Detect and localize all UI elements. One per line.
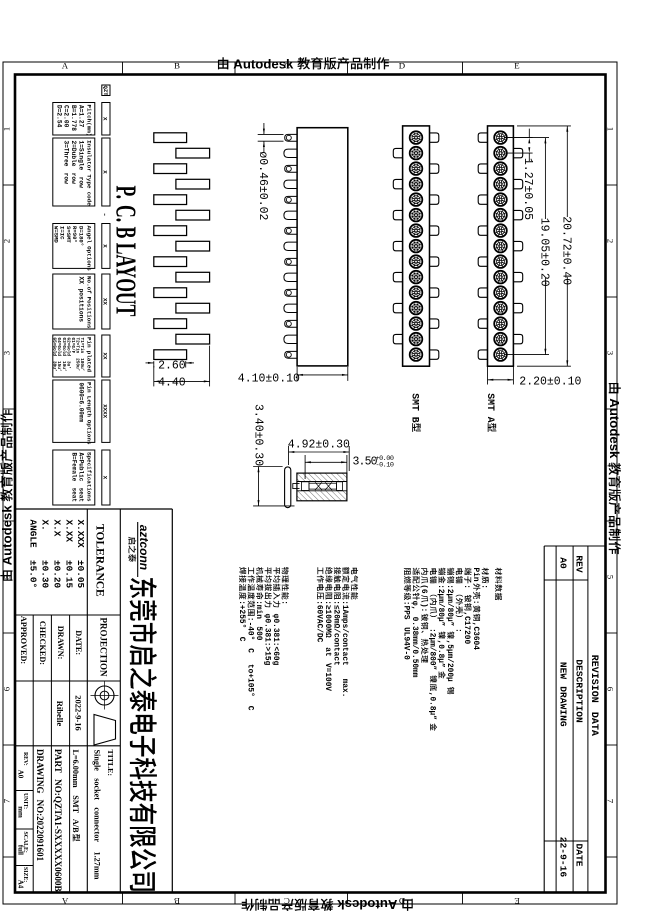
svg-text:B: B	[109, 227, 140, 239]
svg-text:REV: REV	[574, 555, 585, 573]
svg-text:REV:: REV:	[22, 752, 28, 766]
svg-text:XXXX: XXXX	[102, 404, 109, 418]
svg-text:X: X	[102, 244, 109, 248]
svg-text:Single: Single	[93, 750, 102, 772]
svg-text:PART: PART	[53, 749, 63, 773]
svg-text:mm: mm	[17, 806, 25, 818]
svg-text:X.XXX: X.XXX	[75, 520, 86, 549]
svg-text::: :	[471, 600, 479, 605]
svg-text:P.: P.	[109, 186, 140, 200]
svg-text:±0.20: ±0.20	[51, 560, 62, 589]
svg-text:1.27±0.05: 1.27±0.05	[521, 158, 534, 220]
svg-text:NO:QZTA1-SXXXXX0600B: NO:QZTA1-SXXXXX0600B	[53, 779, 63, 892]
svg-text:Options: Options	[86, 246, 93, 271]
svg-text:B: B	[174, 61, 180, 71]
svg-text:A/B: A/B	[71, 819, 80, 833]
svg-text:Specifications: Specifications	[86, 452, 93, 502]
svg-text:E: E	[514, 896, 519, 906]
svg-text:19.05±0.20: 19.05±0.20	[538, 218, 551, 287]
svg-text:B=Female: B=Female	[70, 453, 77, 482]
svg-text:DRAWING: DRAWING	[558, 686, 569, 727]
svg-text:UL94V-0: UL94V-0	[402, 627, 410, 660]
svg-text:C: C	[245, 648, 253, 653]
svg-text:TITLE:: TITLE:	[106, 750, 115, 776]
svg-text:LAYOUT: LAYOUT	[109, 243, 140, 317]
svg-text:DRAWING: DRAWING	[35, 749, 45, 794]
svg-text::: :	[462, 584, 470, 589]
svg-text:):: ):	[419, 603, 427, 612]
svg-text:row: row	[78, 177, 85, 188]
svg-text::2μm/800”: :2μm/800”	[428, 628, 436, 670]
svg-text:4.40: 4.40	[158, 377, 186, 390]
svg-text:6: 6	[2, 686, 12, 691]
svg-text:ANGLE: ANGLE	[28, 520, 39, 549]
svg-text:B=1.778: B=1.778	[70, 105, 77, 131]
svg-text:-0.10: -0.10	[376, 462, 394, 470]
svg-text:7: 7	[2, 798, 12, 803]
svg-text:Autodesk: Autodesk	[607, 398, 622, 459]
svg-text::≤20mΩ/contact: :≤20mΩ/contact	[332, 600, 340, 666]
svg-text:at: at	[323, 647, 331, 656]
svg-text:A: A	[61, 896, 68, 906]
svg-text:XX: XX	[102, 298, 109, 305]
svg-text:250u’: 250u’	[75, 358, 80, 371]
svg-text:C: C	[237, 637, 245, 642]
svg-text:A: A	[62, 61, 69, 71]
svg-text:Autodesk: Autodesk	[337, 897, 398, 912]
svg-text:row: row	[63, 173, 70, 184]
svg-text:NO:2022091601: NO:2022091601	[35, 800, 45, 862]
svg-text:0600=6.00mm: 0600=6.00mm	[78, 383, 85, 423]
svg-text:C.: C.	[109, 205, 140, 222]
svg-text:3: 3	[2, 350, 12, 355]
svg-text:Pin: Pin	[86, 382, 93, 393]
svg-text:D=2.54: D=2.54	[55, 105, 62, 128]
svg-text:Options: Options	[86, 420, 93, 445]
svg-text:TOLERANCE: TOLERANCE	[94, 524, 106, 597]
svg-text:500: 500	[254, 626, 262, 640]
svg-text:C=2.00: C=2.00	[63, 105, 70, 128]
svg-text:plated: plated	[86, 351, 93, 373]
svg-text:D: D	[399, 61, 405, 71]
svg-text:XX: XX	[102, 353, 109, 360]
svg-text:XX: XX	[78, 277, 85, 285]
svg-text:DATE:: DATE:	[74, 630, 83, 655]
svg-text:B: B	[174, 896, 180, 906]
svg-text:6: 6	[606, 687, 616, 692]
svg-text:4.92±0.30: 4.92±0.30	[288, 439, 350, 452]
svg-text:±0.30: ±0.30	[40, 560, 51, 589]
svg-text:2: 2	[606, 239, 616, 243]
svg-text:L=6.00mm: L=6.00mm	[71, 750, 80, 788]
svg-text:±0.05: ±0.05	[75, 560, 86, 589]
svg-text:max.: max.	[340, 679, 348, 698]
svg-text:V=100V: V=100V	[323, 663, 331, 691]
svg-text:row: row	[70, 173, 77, 184]
svg-text:5: 5	[606, 575, 616, 580]
svg-text::-40°: :-40°	[245, 617, 254, 640]
svg-text:-: -	[101, 213, 110, 216]
svg-text:X: X	[102, 476, 109, 480]
svg-text:1.27mm: 1.27mm	[93, 852, 102, 880]
svg-text::2μm/80μ”: :2μm/80μ”	[445, 584, 453, 626]
svg-text:,C3604: ,C3604	[471, 622, 479, 650]
svg-text:,C17200: ,C17200	[462, 611, 470, 644]
svg-text:to+105°: to+105°	[245, 664, 254, 697]
svg-text:3.50: 3.50	[353, 456, 378, 469]
svg-text:A: A	[485, 417, 496, 423]
svg-text:E: E	[514, 61, 519, 71]
svg-text:,0.8μ”: ,0.8μ”	[436, 640, 444, 668]
svg-text:code: code	[86, 192, 93, 207]
svg-text:positions: positions	[78, 289, 85, 323]
svg-text:DESCRIPTION: DESCRIPTION	[574, 659, 585, 723]
svg-text:X.X: X.X	[51, 520, 62, 537]
svg-text:C: C	[284, 896, 290, 906]
svg-text:4.10±0.10: 4.10±0.10	[238, 373, 300, 386]
svg-text:2.20±0.10: 2.20±0.10	[519, 376, 581, 389]
svg-text:A=1.27: A=1.27	[78, 105, 85, 128]
svg-text:DATE: DATE	[574, 844, 585, 867]
svg-text:φ0.381:<60g: φ0.381:<60g	[271, 614, 279, 666]
svg-text:A=Public: A=Public	[78, 453, 85, 482]
svg-text:DATA: DATA	[588, 712, 599, 736]
svg-text:2=Duble: 2=Duble	[70, 141, 77, 167]
svg-text:SMT: SMT	[71, 795, 80, 813]
svg-text:QZT: QZT	[102, 86, 109, 97]
svg-text:Angel: Angel	[86, 226, 93, 244]
svg-text:connector: connector	[93, 807, 102, 842]
svg-text:0.38mm/0.50mm: 0.38mm/0.50mm	[410, 617, 418, 678]
svg-text:seat: seat	[78, 488, 85, 503]
svg-text::+255°: :+255°	[237, 600, 246, 628]
svg-text:2: 2	[2, 239, 12, 243]
svg-text:,0.8μ”: ,0.8μ”	[428, 692, 436, 720]
svg-text:NEW: NEW	[558, 662, 569, 680]
svg-text:±0.15: ±0.15	[63, 560, 74, 589]
svg-text:B: B	[410, 417, 421, 423]
svg-text:Pitch(mm): Pitch(mm)	[86, 105, 93, 137]
svg-text:7: 7	[606, 799, 616, 804]
svg-text:G5=Gold: G5=Gold	[52, 338, 57, 357]
svg-text::: :	[453, 628, 461, 633]
svg-text:Pin: Pin	[471, 568, 479, 582]
svg-text:APPROVED:: APPROVED:	[19, 616, 28, 664]
svg-text:full: full	[17, 845, 25, 855]
svg-text::1Amps/contact: :1Amps/contact	[340, 600, 348, 666]
svg-text::: :	[279, 600, 287, 605]
svg-text:Pin: Pin	[86, 337, 93, 348]
svg-text:DRAWN:: DRAWN:	[56, 626, 65, 660]
svg-text:1: 1	[2, 127, 12, 131]
svg-text:X: X	[102, 170, 109, 174]
svg-text:Autodesk: Autodesk	[233, 56, 294, 71]
svg-text:aztconn: aztconn	[137, 525, 151, 570]
svg-text:SMT: SMT	[410, 393, 421, 411]
svg-text:3=Three: 3=Three	[63, 141, 70, 167]
svg-text::60VAC/DC: :60VAC/DC	[315, 600, 323, 642]
svg-text:ø0.46±0.02: ø0.46±0.02	[256, 151, 269, 220]
svg-text:Ribelle: Ribelle	[55, 701, 65, 727]
svg-text:Autodesk: Autodesk	[0, 505, 14, 566]
svg-text:30u’: 30u’	[52, 361, 57, 372]
svg-text:A0: A0	[558, 557, 569, 569]
svg-text:A0: A0	[17, 770, 25, 779]
svg-text:Positions: Positions	[86, 297, 93, 329]
svg-text:1: 1	[606, 127, 616, 131]
svg-text:C: C	[245, 706, 253, 711]
svg-text::PPS: :PPS	[402, 601, 410, 620]
svg-text:CHECKED:: CHECKED:	[38, 621, 47, 665]
svg-text:PROJECTION: PROJECTION	[99, 618, 109, 678]
svg-text:No.of: No.of	[86, 276, 93, 294]
svg-text:(6: (6	[419, 584, 427, 594]
svg-text:socket: socket	[93, 778, 102, 800]
svg-text:φ0.381:>15g: φ0.381:>15g	[262, 614, 270, 666]
svg-text::: :	[479, 584, 487, 589]
svg-text::min: :min	[254, 600, 262, 619]
svg-text:W=SMD: W=SMD	[52, 226, 59, 243]
svg-text:X: X	[102, 117, 109, 121]
svg-text:20.72±0.40: 20.72±0.40	[560, 216, 573, 285]
svg-text:A4: A4	[17, 880, 25, 889]
svg-text:1=Single: 1=Single	[78, 141, 85, 171]
svg-text:2022-9-16: 2022-9-16	[74, 695, 84, 730]
svg-text:Type: Type	[86, 174, 93, 189]
svg-text:X.XX: X.XX	[63, 520, 74, 543]
svg-text:seat: seat	[70, 488, 77, 503]
svg-text:X.: X.	[40, 520, 51, 531]
svg-text::≥1000MΩ: :≥1000MΩ	[323, 600, 331, 638]
svg-text:REVISION: REVISION	[588, 655, 599, 703]
svg-text:3.40±0.30: 3.40±0.30	[251, 404, 264, 466]
svg-text::2μm/80μ”: :2μm/80μ”	[436, 584, 444, 626]
svg-text:φ,: φ,	[410, 601, 418, 610]
svg-text:Insulator: Insulator	[86, 140, 93, 172]
svg-text:Length: Length	[86, 396, 93, 418]
svg-text:,5μm/200μ: ,5μm/200μ	[445, 640, 453, 682]
svg-text:3: 3	[606, 351, 616, 356]
svg-text:±5.0°: ±5.0°	[28, 560, 39, 588]
svg-text:SMT: SMT	[485, 393, 496, 411]
svg-text:2.60: 2.60	[158, 360, 186, 373]
svg-text:22-9-16: 22-9-16	[558, 837, 569, 878]
